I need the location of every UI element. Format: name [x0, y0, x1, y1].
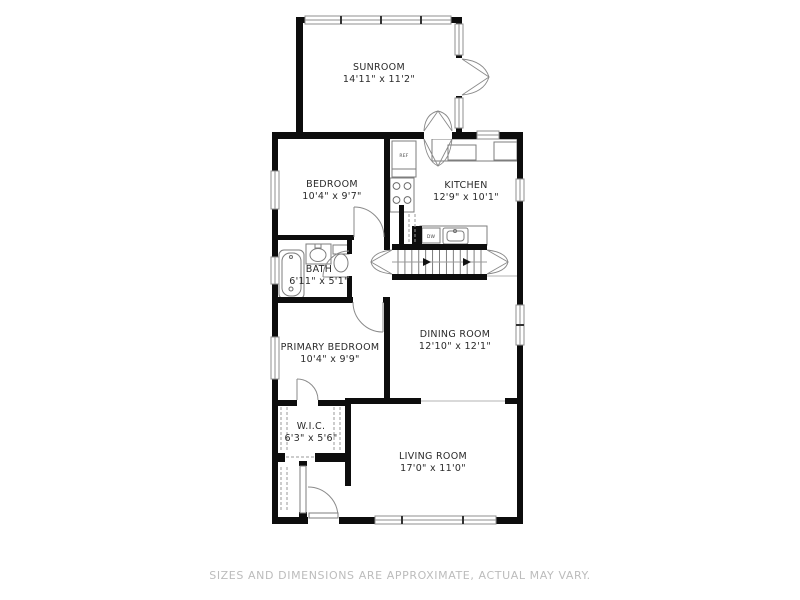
- wall-segment: [399, 205, 404, 245]
- doors-layer: [297, 59, 508, 518]
- wall-segment: [272, 297, 353, 303]
- room-label-primary-bedroom: PRIMARY BEDROOM: [281, 342, 380, 353]
- dishwasher-label: DW: [427, 234, 436, 240]
- wall-segment: [384, 297, 390, 403]
- wall-segment: [272, 453, 285, 462]
- fixture-rect: [392, 169, 416, 177]
- passage-arch-fan: [487, 250, 508, 274]
- wall-segment: [505, 398, 523, 404]
- wall-segment: [296, 17, 303, 138]
- passage-arch-fan: [371, 250, 392, 274]
- room-dims-wic: 6'3" x 5'6": [284, 433, 337, 444]
- fixture-rect: [494, 142, 517, 160]
- door-swing-arc: [353, 302, 383, 332]
- room-label-dining-room: DINING ROOM: [420, 329, 491, 340]
- wall-segment: [392, 244, 487, 250]
- room-label-bedroom: BEDROOM: [306, 179, 358, 190]
- wall-segment: [278, 235, 354, 240]
- refrigerator-label: REF: [399, 153, 408, 159]
- room-dims-sunroom: 14'11" x 11'2": [343, 74, 415, 85]
- wall-segment: [345, 398, 351, 464]
- door-opening: [455, 58, 463, 96]
- wall-segment: [299, 461, 307, 466]
- fixture-rounded: [282, 253, 301, 296]
- wall-segment: [347, 240, 352, 254]
- floorplan: SUNROOM14'11" x 11'2"BEDROOM10'4" x 9'7"…: [0, 0, 800, 600]
- wall-segment: [318, 400, 345, 406]
- door-leaf-panel: [300, 466, 306, 513]
- disclaimer-text: SIZES AND DIMENSIONS ARE APPROXIMATE, AC…: [0, 569, 800, 582]
- fixture-rect: [448, 145, 476, 160]
- wall-segment: [345, 398, 421, 404]
- fixture-ellipse: [310, 249, 326, 262]
- door-leaf-panel: [309, 513, 338, 518]
- floorplan-svg: SUNROOM14'11" x 11'2"BEDROOM10'4" x 9'7"…: [0, 0, 800, 600]
- labels-layer: SUNROOM14'11" x 11'2"BEDROOM10'4" x 9'7"…: [281, 62, 499, 474]
- staircase: [392, 250, 487, 274]
- wall-segment: [412, 226, 422, 244]
- fixture-ellipse: [334, 254, 348, 272]
- passage-arch-fan: [424, 111, 452, 131]
- wall-segment: [315, 453, 345, 462]
- room-dims-dining-room: 12'10" x 12'1": [419, 341, 491, 352]
- room-label-sunroom: SUNROOM: [353, 62, 405, 73]
- door-swing-arc: [297, 379, 318, 400]
- room-dims-living-room: 17'0" x 11'0": [400, 463, 466, 474]
- room-dims-bath: 6'11" x 5'1": [289, 276, 348, 287]
- room-label-kitchen: KITCHEN: [444, 180, 487, 191]
- stair-direction-arrow: [423, 258, 431, 266]
- wall-segment: [392, 274, 487, 280]
- wall-segment: [384, 139, 390, 250]
- wall-segment: [345, 462, 351, 486]
- passage-arch-fan: [462, 59, 489, 95]
- wall-segment: [272, 400, 297, 406]
- room-label-wic: W.I.C.: [297, 421, 326, 432]
- room-dims-bedroom: 10'4" x 9'7": [302, 191, 361, 202]
- room-dims-primary-bedroom: 10'4" x 9'9": [300, 354, 359, 365]
- room-dims-kitchen: 12'9" x 10'1": [433, 192, 499, 203]
- door-swing-arc: [354, 207, 384, 237]
- fixture-rect: [315, 244, 321, 248]
- door-opening: [424, 132, 452, 139]
- room-label-bath: BATH: [306, 264, 332, 275]
- room-label-living-room: LIVING ROOM: [399, 451, 467, 462]
